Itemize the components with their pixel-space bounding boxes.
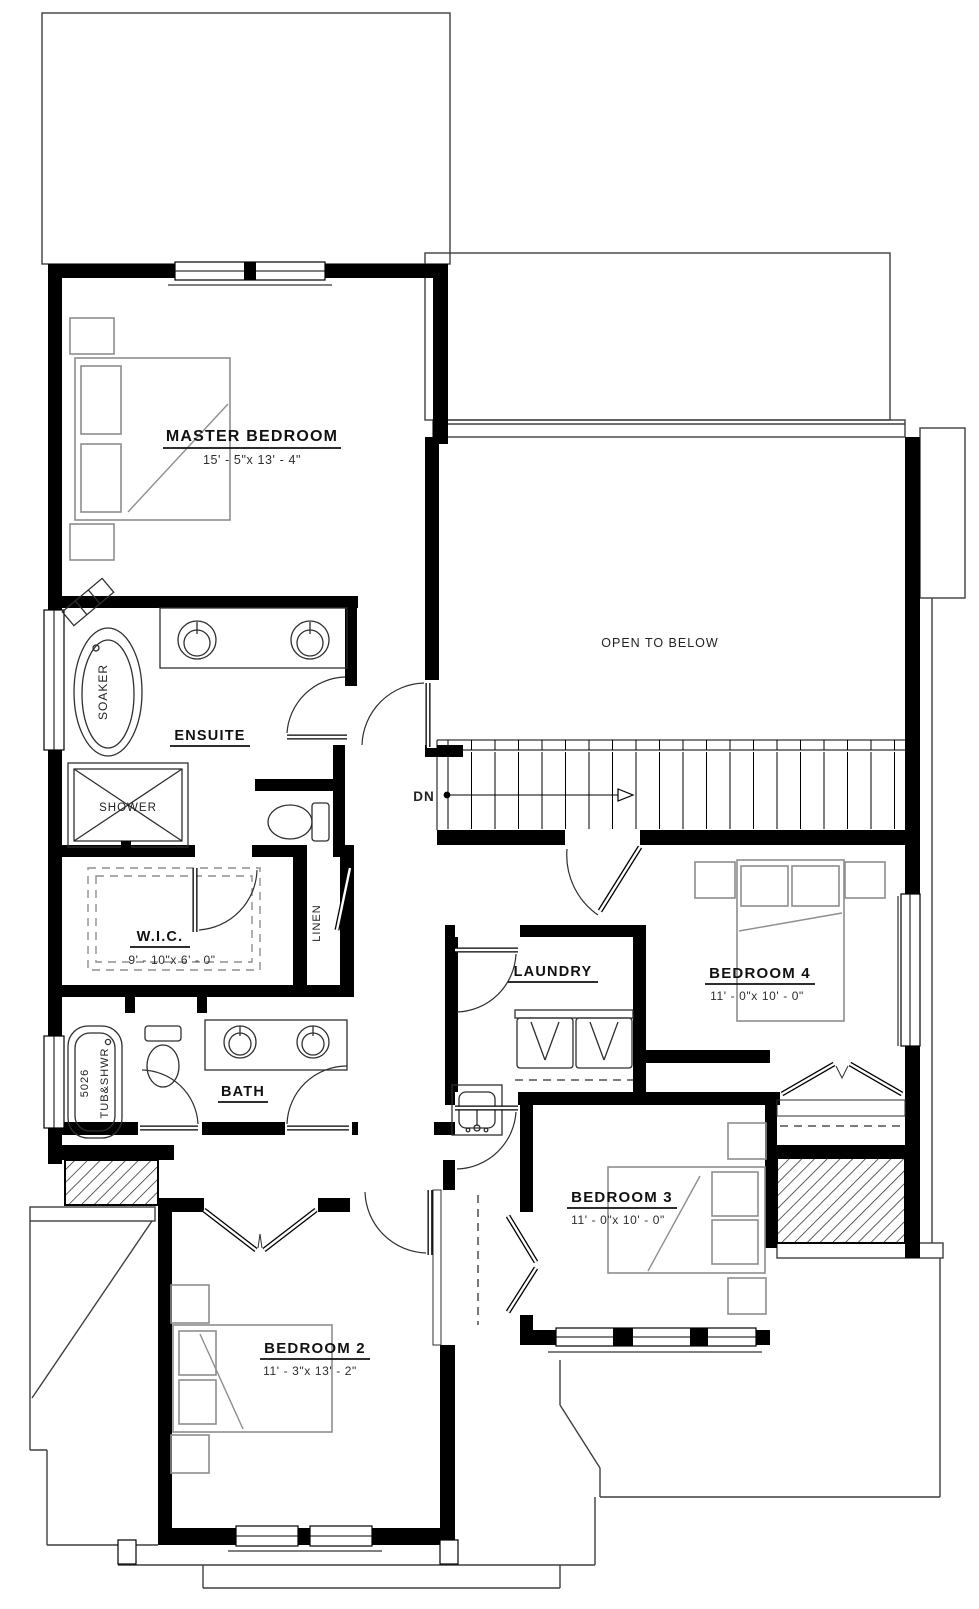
stairs xyxy=(437,740,905,830)
fixture-label-tub-model: 5026 xyxy=(79,1069,91,1097)
ensuite-window xyxy=(44,610,64,750)
bedroom4-door xyxy=(567,847,640,915)
bedroom2-entry-doors xyxy=(204,1210,316,1250)
wic-door xyxy=(195,868,257,932)
bedroom4-window xyxy=(898,894,920,1046)
fixture-label-soaker: SOAKER xyxy=(96,664,110,720)
floor-plan-svg: MASTER BEDROOM 15' - 5"x 13' - 4" OPEN T… xyxy=(0,0,979,1609)
bedroom4-closet-bifold xyxy=(782,1064,902,1094)
bath-window xyxy=(44,1036,64,1128)
master-bedroom-door xyxy=(362,683,428,747)
bedroom2-hall-door xyxy=(365,1190,430,1255)
room-dims-bedroom2: 11' - 3"x 13' - 2" xyxy=(263,1364,357,1378)
room-label-bedroom3: BEDROOM 3 xyxy=(571,1189,673,1206)
room-label-master-bedroom: MASTER BEDROOM xyxy=(166,428,338,445)
label-layer: MASTER BEDROOM 15' - 5"x 13' - 4" OPEN T… xyxy=(79,428,815,1378)
bath-toilet xyxy=(145,1026,181,1087)
floor-plan-page: MASTER BEDROOM 15' - 5"x 13' - 4" OPEN T… xyxy=(0,0,979,1609)
bath-vanity xyxy=(205,1020,347,1070)
ensuite-vanity xyxy=(160,608,347,668)
fixture-label-tub-type: TUB&SHWR xyxy=(99,1048,111,1119)
bedroom3-window xyxy=(548,1328,762,1352)
master-bedroom-window xyxy=(168,262,332,285)
stairs-dn-label: DN xyxy=(413,789,435,804)
stair-arrow-start xyxy=(444,792,451,799)
stair-arrow-head xyxy=(618,789,633,801)
ensuite-door xyxy=(287,677,347,737)
bath-door-left xyxy=(140,1070,198,1128)
room-dims-master-bedroom: 15' - 5"x 13' - 4" xyxy=(203,453,301,467)
stair-treads xyxy=(448,740,895,829)
fixture-label-shower: SHOWER xyxy=(99,802,157,814)
room-label-laundry: LAUNDRY xyxy=(514,964,593,980)
ensuite-toilet xyxy=(268,803,329,841)
room-label-linen: LINEN xyxy=(311,904,323,941)
laundry-door xyxy=(455,950,518,1012)
room-label-ensuite: ENSUITE xyxy=(174,728,245,744)
window-layer xyxy=(44,262,920,1564)
room-label-open-to-below: OPEN TO BELOW xyxy=(601,636,718,650)
bedroom2-bed xyxy=(171,1285,332,1473)
room-dims-bedroom3: 11' - 0"x 10' - 0" xyxy=(571,1213,665,1227)
room-label-bedroom4: BEDROOM 4 xyxy=(709,965,811,982)
bedroom3-door xyxy=(455,1108,518,1169)
bedroom4-closet-shelf xyxy=(777,1100,905,1126)
hatch-chase-right xyxy=(777,1158,905,1243)
bath-tub xyxy=(68,1026,122,1138)
room-label-wic: W.I.C. xyxy=(137,929,184,945)
bath-door-right xyxy=(287,1066,349,1128)
room-label-bedroom2: BEDROOM 2 xyxy=(264,1340,366,1357)
room-label-bath: BATH xyxy=(221,1084,265,1100)
room-dims-wic: 9' - 10"x 6' - 0" xyxy=(128,953,215,967)
room-dims-bedroom4: 11' - 0"x 10' - 0" xyxy=(710,989,804,1003)
washer-dryer xyxy=(515,1010,633,1080)
hatch-chase-left xyxy=(65,1160,158,1205)
